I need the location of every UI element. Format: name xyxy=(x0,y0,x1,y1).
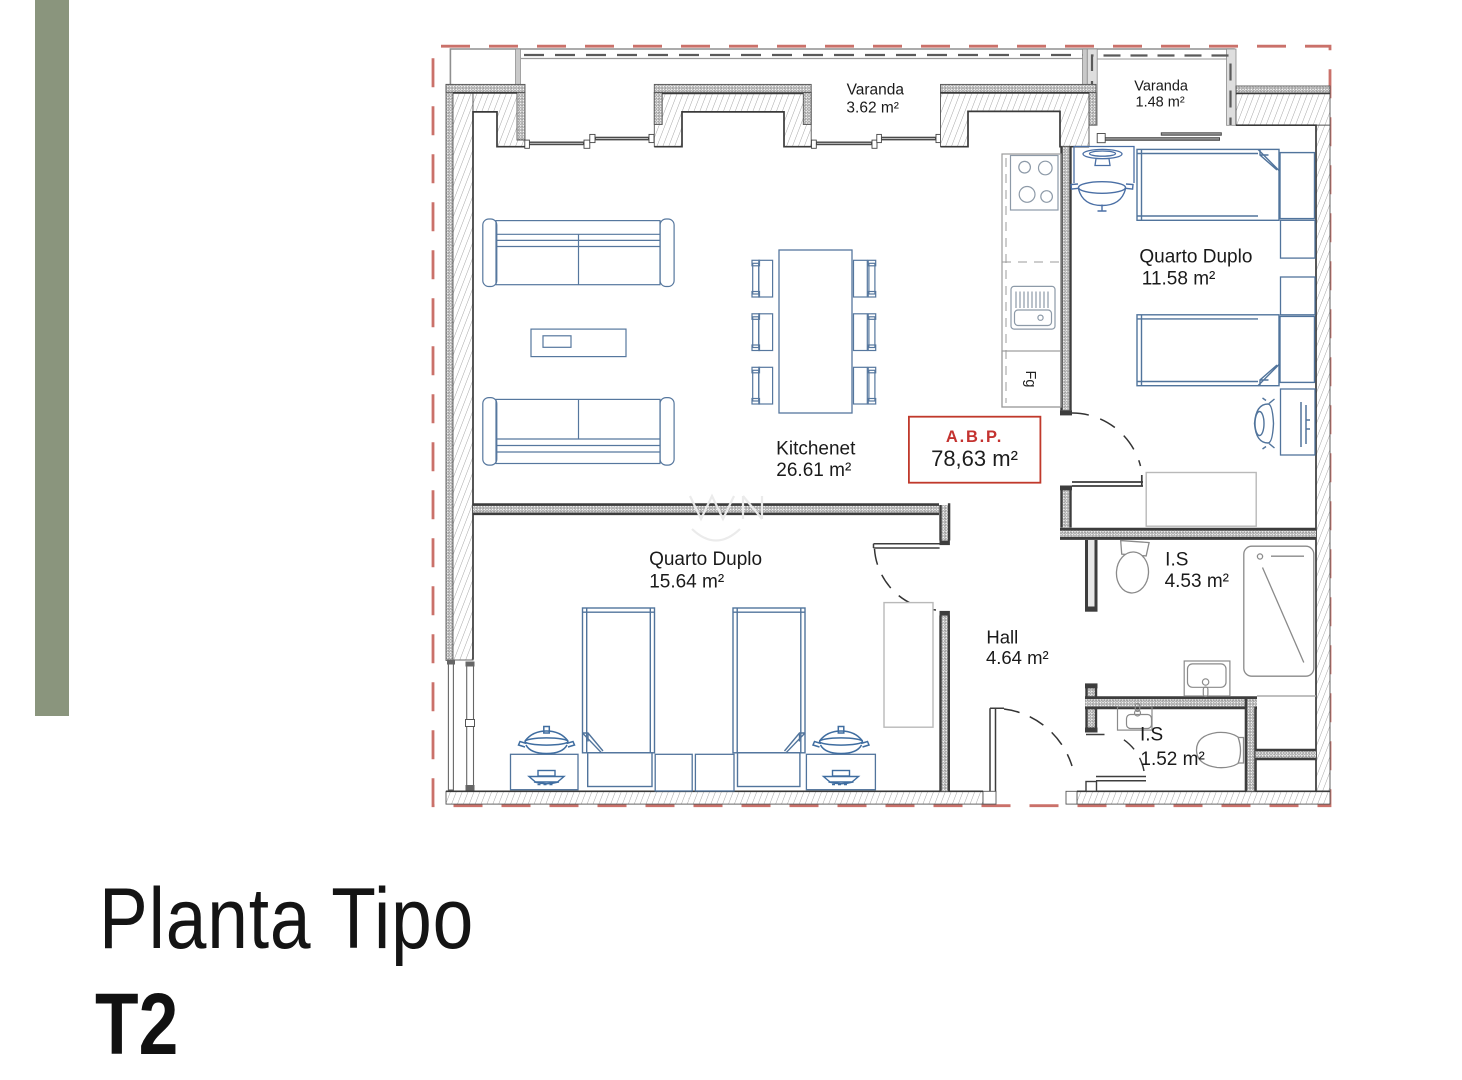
svg-text:1.48 m²: 1.48 m² xyxy=(1136,95,1185,111)
svg-text:4.53 m²: 4.53 m² xyxy=(1165,571,1229,592)
svg-text:I.S: I.S xyxy=(1165,550,1188,571)
svg-text:Fg: Fg xyxy=(1022,371,1038,388)
svg-text:A.B.P.: A.B.P. xyxy=(946,428,1003,446)
svg-text:Varanda: Varanda xyxy=(847,81,905,98)
svg-text:11.58 m²: 11.58 m² xyxy=(1142,269,1216,290)
svg-text:4.64 m²: 4.64 m² xyxy=(986,647,1049,668)
svg-text:Quarto Duplo: Quarto Duplo xyxy=(649,549,762,570)
svg-text:Hall: Hall xyxy=(986,626,1018,647)
svg-text:3.62 m²: 3.62 m² xyxy=(846,100,899,117)
svg-text:26.61 m²: 26.61 m² xyxy=(776,460,851,481)
svg-text:Kitchenet: Kitchenet xyxy=(776,438,856,459)
svg-text:Varanda: Varanda xyxy=(1134,78,1189,94)
svg-text:1.52 m²: 1.52 m² xyxy=(1140,749,1204,770)
svg-text:I.S: I.S xyxy=(1140,725,1163,746)
svg-text:Quarto Duplo: Quarto Duplo xyxy=(1139,247,1252,268)
svg-text:15.64 m²: 15.64 m² xyxy=(649,571,724,592)
svg-text:78,63 m²: 78,63 m² xyxy=(931,446,1018,471)
